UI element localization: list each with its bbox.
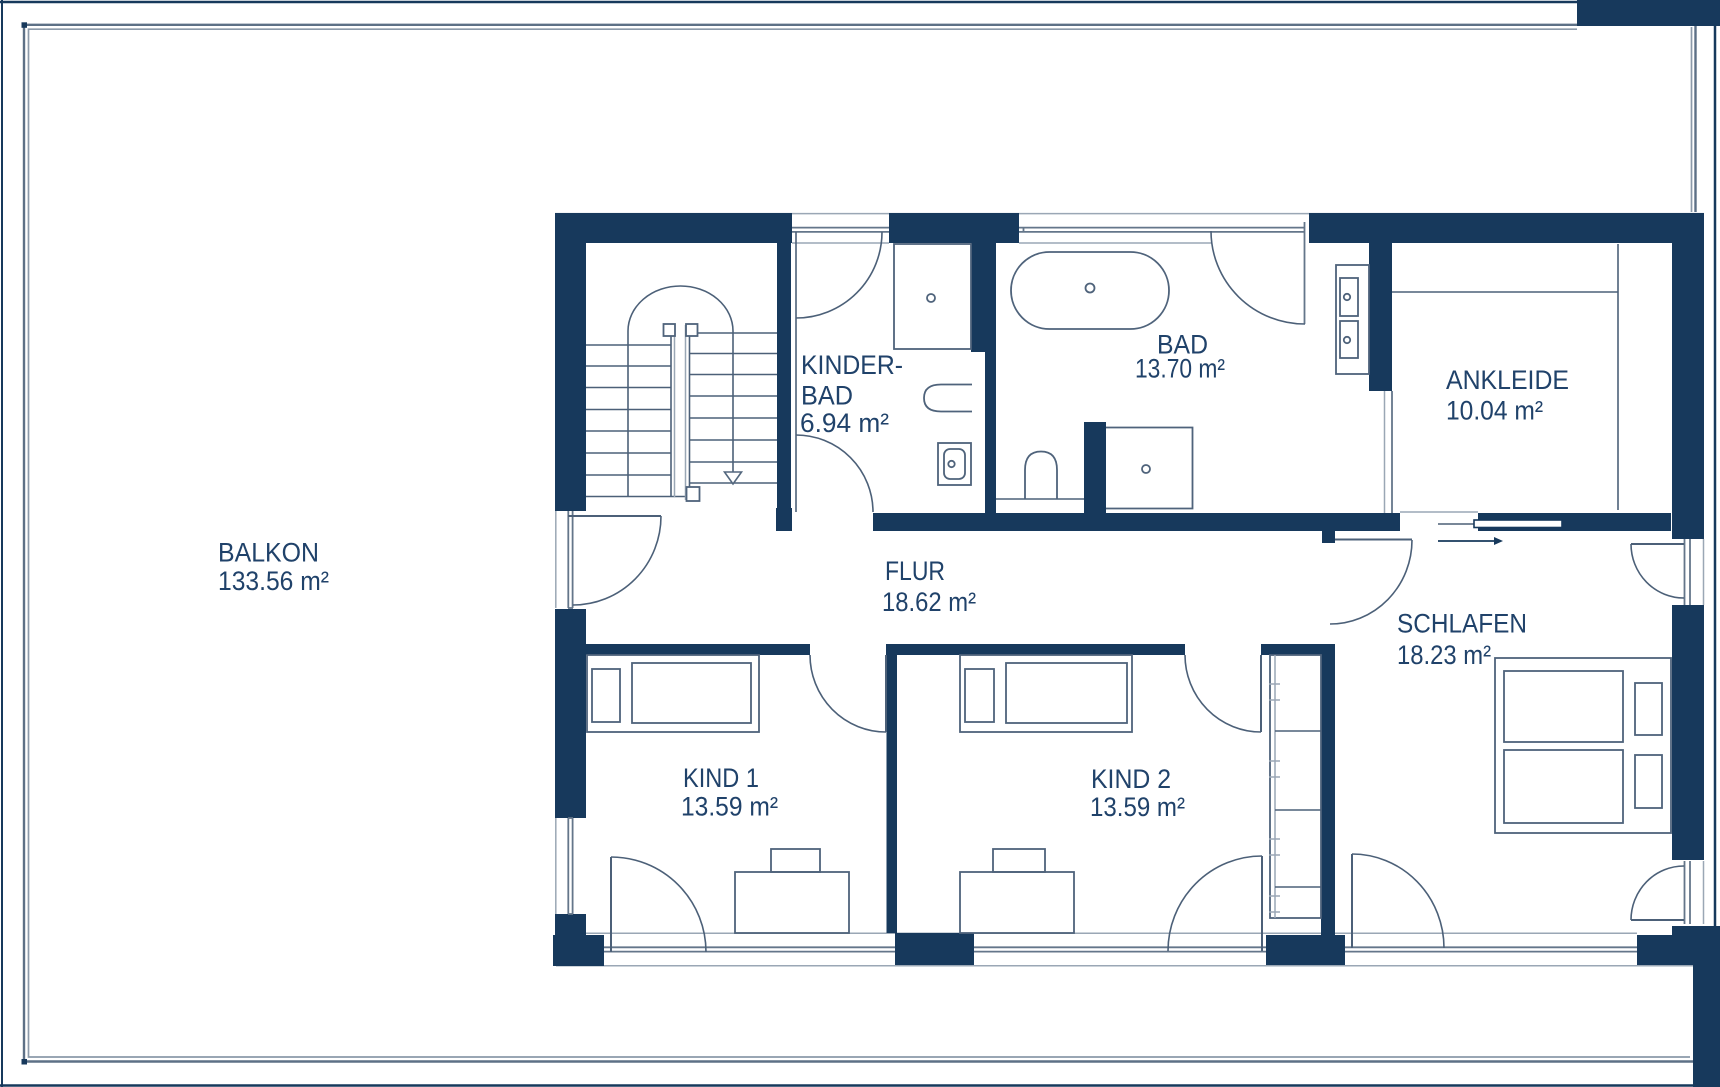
svg-text:KIND 2: KIND 2 [1091,764,1171,794]
svg-text:BAD: BAD [801,381,853,411]
svg-text:BALKON: BALKON [218,538,319,568]
svg-text:6.94 m²: 6.94 m² [800,408,889,438]
svg-text:KIND 1: KIND 1 [683,763,759,793]
svg-text:13.70 m²: 13.70 m² [1135,354,1225,384]
svg-text:10.04 m²: 10.04 m² [1446,396,1543,426]
svg-text:ANKLEIDE: ANKLEIDE [1446,365,1569,395]
svg-text:18.62 m²: 18.62 m² [882,587,976,617]
svg-text:133.56 m²: 133.56 m² [218,566,329,596]
svg-text:18.23 m²: 18.23 m² [1397,640,1491,670]
svg-text:13.59 m²: 13.59 m² [681,792,778,822]
svg-text:KINDER-: KINDER- [801,350,903,380]
svg-text:SCHLAFEN: SCHLAFEN [1397,609,1527,639]
svg-text:FLUR: FLUR [885,556,945,586]
svg-text:13.59 m²: 13.59 m² [1090,792,1185,822]
